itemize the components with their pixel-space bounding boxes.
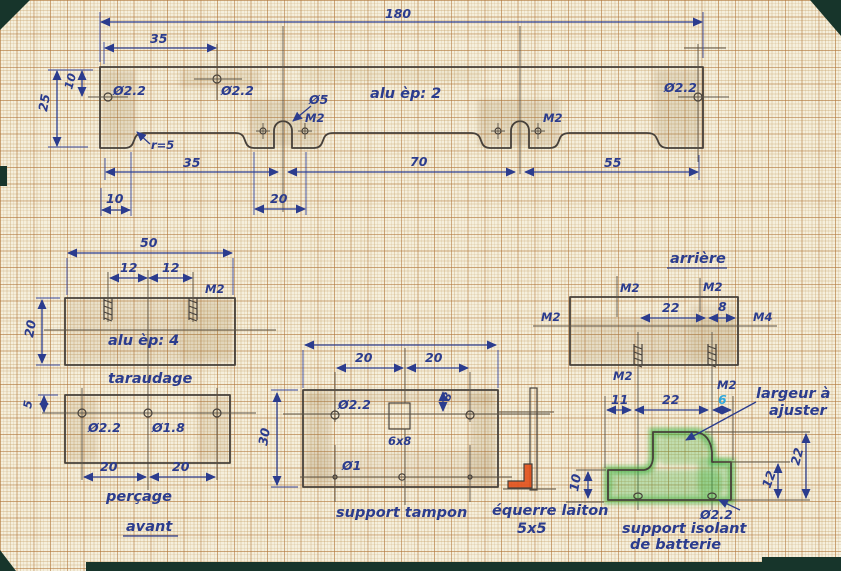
dim-10: 10	[566, 472, 584, 492]
equerre-view: équerre laiton 5x5	[492, 388, 609, 537]
thread-label-side-left: M2	[541, 310, 560, 324]
material-note: alu èp: 2	[370, 86, 441, 102]
dim-35-top: 35	[150, 31, 168, 46]
notch-label: Ø5	[308, 92, 329, 107]
dim-20: 20	[270, 191, 288, 206]
dim-20a: 20	[100, 459, 118, 474]
note-largeur: largeur à	[756, 386, 830, 402]
dim-5: 5	[20, 399, 35, 409]
dim-11: 11	[611, 392, 628, 407]
technical-drawing: 180 35 25 10 alu èp: 2 Ø2.2 Ø2.2 Ø2.2 Ø5…	[0, 0, 841, 571]
dimensions	[48, 12, 703, 216]
caption-percage: perçage	[105, 489, 172, 505]
dim-20: 20	[21, 318, 39, 338]
dim-180: 180	[385, 6, 411, 21]
thread-label-top-left: M2	[620, 281, 639, 295]
thread-label-top-right: M2	[703, 280, 722, 294]
hole-label-mid: Ø2.2	[220, 83, 254, 98]
hole-label-upper: Ø2.2	[337, 397, 371, 412]
caption-taraudage: taraudage	[108, 371, 193, 387]
dim-50: 50	[140, 235, 158, 250]
radius-label: r=5	[151, 138, 174, 152]
caption-de-batterie: de batterie	[630, 537, 721, 553]
dim-25: 25	[35, 92, 53, 112]
view-label-avant: avant	[126, 519, 173, 535]
dim-10-left: 10	[61, 72, 79, 91]
thread-label-side-right: M4	[753, 310, 772, 324]
material-note: alu èp: 4	[108, 333, 179, 349]
dim-20a: 20	[355, 350, 373, 365]
dim-12a: 12	[120, 260, 137, 275]
dim-12b: 12	[162, 260, 179, 275]
dim-22-vertical: 22	[787, 446, 806, 467]
hole-label-left: Ø2.2	[112, 83, 146, 98]
slot-label: 6x8	[388, 434, 411, 448]
hole-label-2: Ø1.8	[151, 420, 185, 435]
dim-6-highlighted: 6	[718, 392, 727, 407]
dim-20b: 20	[425, 350, 443, 365]
thread-label-left: M2	[305, 111, 324, 125]
dim-20b: 20	[172, 459, 190, 474]
hole-label-right: Ø2.2	[663, 80, 697, 95]
dim-35: 35	[183, 155, 201, 170]
hole-label: Ø2.2	[699, 507, 733, 522]
percage-view: 5 Ø2.2 Ø1.8 20 20 perçage avant	[20, 388, 256, 536]
thread-label: M2	[205, 282, 224, 296]
dim-8: 8	[718, 299, 727, 314]
caption-support-tampon: support tampon	[336, 505, 467, 521]
dim-30: 30	[255, 426, 273, 446]
note-ajuster: ajuster	[769, 403, 827, 419]
support-tampon-view: 20 20 Ø2.2 6x8 8 Ø1 30 support tampon	[255, 345, 550, 521]
taraudage-view: 50 12 12 M2 alu èp: 4 20 taraudage	[21, 235, 276, 490]
dim-22: 22	[662, 392, 679, 407]
slot-6x8	[389, 403, 410, 429]
construction-lines	[88, 26, 729, 212]
caption-support-isolant: support isolant	[622, 521, 747, 537]
support-isolant-view: 11 22 6 10 12 22 Ø2.2 largeur à ajuster …	[566, 386, 830, 553]
thread-label-right: M2	[543, 111, 562, 125]
hole-label-1: Ø2.2	[87, 420, 121, 435]
caption-equerre-size: 5x5	[517, 521, 547, 537]
dim-12: 12	[759, 469, 779, 490]
caption-equerre: équerre laiton	[492, 503, 609, 519]
dim-55: 55	[604, 155, 622, 170]
equerre-bracket	[508, 464, 532, 488]
dim-70: 70	[410, 154, 428, 169]
dim-22: 22	[662, 300, 679, 315]
main-plate-view: 180 35 25 10 alu èp: 2 Ø2.2 Ø2.2 Ø2.2 Ø5…	[35, 6, 729, 216]
view-label-arriere: arrière	[670, 251, 726, 267]
drawing-sheet: 180 35 25 10 alu èp: 2 Ø2.2 Ø2.2 Ø2.2 Ø5…	[0, 0, 841, 571]
thread-label-bottom-right: M2	[717, 378, 736, 392]
dim-10: 10	[106, 191, 124, 206]
thread-label-bottom-left: M2	[613, 369, 632, 383]
hole-label-lower: Ø1	[341, 458, 361, 473]
